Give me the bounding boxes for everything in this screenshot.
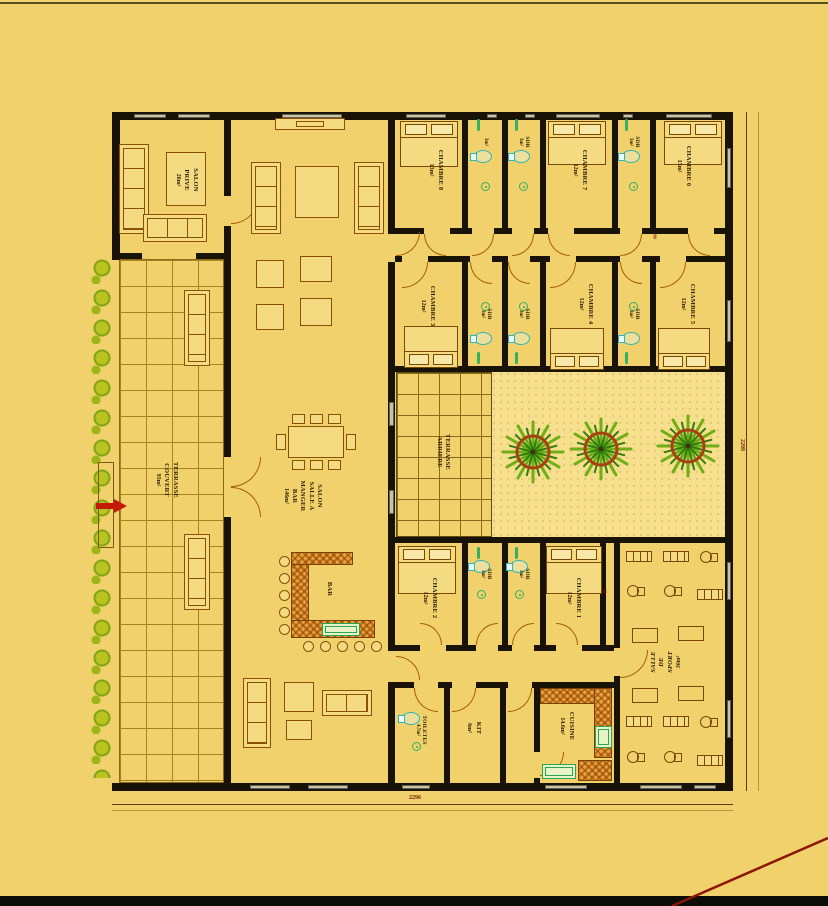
window xyxy=(389,402,394,426)
gym-bike-icon xyxy=(664,749,682,764)
stool-icon xyxy=(279,624,290,635)
wall xyxy=(388,682,395,783)
room-label-toiletes: TOILETES 4.7m² xyxy=(403,698,439,762)
room-label-terrasse-arriere: TERRASSE ARRIERE xyxy=(425,420,461,484)
door-swing-icon xyxy=(470,262,492,284)
window xyxy=(727,300,731,342)
door-swing-icon xyxy=(231,487,261,517)
room-area: 13m² xyxy=(428,164,434,177)
wall xyxy=(612,112,618,234)
room-area: 12m² xyxy=(420,300,426,313)
stool-icon xyxy=(279,590,290,601)
room-area: 3m² xyxy=(484,138,489,146)
wall xyxy=(112,253,142,259)
armchair-icon xyxy=(256,304,284,330)
window xyxy=(525,114,535,118)
room-name: SDB xyxy=(485,308,492,319)
wall xyxy=(502,543,508,651)
room-area: 93m² xyxy=(155,474,161,487)
wall xyxy=(224,517,231,783)
door-swing-icon xyxy=(688,234,710,256)
gym-bike-icon xyxy=(627,749,645,764)
room-name: CHAMBRE 5 xyxy=(687,284,695,325)
room-label-sdb: SDB 3m² xyxy=(516,299,532,329)
gym-bench-icon xyxy=(626,551,652,562)
chair-icon xyxy=(328,414,341,424)
wall xyxy=(388,112,395,234)
room-area: 3m² xyxy=(518,570,523,578)
room-label-sdb: SDB 3m² xyxy=(516,127,532,157)
room-name: CHAMBRE 2 xyxy=(429,578,437,619)
window xyxy=(134,114,166,118)
stool-icon xyxy=(320,641,331,652)
stool-icon xyxy=(279,607,290,618)
room-label-terrasse-couvert: TERRASSE COUVERT 93m² xyxy=(149,448,185,512)
window xyxy=(545,785,587,789)
dimension-line xyxy=(758,112,759,791)
room-name: SDB xyxy=(485,568,492,579)
floor-drain-icon xyxy=(515,590,524,599)
dimension-line xyxy=(112,810,733,811)
floor-drain-icon xyxy=(481,182,490,191)
sofa-icon xyxy=(243,678,271,748)
room-area: 6m² xyxy=(466,723,472,733)
room-label-salon-prive: SALON PRIVE 26m² xyxy=(169,148,205,212)
courtyard-floor xyxy=(492,372,725,537)
room-name: TOILETES xyxy=(420,715,427,744)
wall xyxy=(462,543,468,651)
door-swing-icon xyxy=(396,656,420,680)
wall xyxy=(224,259,231,457)
floor-drain-icon xyxy=(519,182,528,191)
door-swing-icon xyxy=(620,234,642,256)
room-area: 12m² xyxy=(680,298,686,311)
room-area: 14.6m² xyxy=(559,717,565,734)
gym-bike-icon xyxy=(700,549,718,564)
room-area: 13m² xyxy=(676,160,682,173)
floor-plan-canvas: SALON PRIVE 26m² TERRASSE COUVERT 93m² S… xyxy=(0,0,828,906)
window xyxy=(694,785,716,789)
window xyxy=(727,148,731,188)
stool-icon xyxy=(279,556,290,567)
door-opening xyxy=(476,645,498,651)
room-area: 36m² xyxy=(676,656,682,668)
room-name: SALLE DE SPORT xyxy=(650,651,674,673)
window xyxy=(623,114,633,118)
room-area: 12m² xyxy=(572,164,578,177)
gym-bench-icon xyxy=(663,716,689,727)
door-width-label: 90 xyxy=(603,582,608,602)
window xyxy=(308,785,348,789)
kitchen-counter xyxy=(578,760,612,781)
chair-icon xyxy=(346,434,356,450)
room-area: 12m² xyxy=(566,592,572,605)
room-label-sdb: SDB 3m² xyxy=(516,559,532,589)
table-icon xyxy=(300,256,332,282)
wall xyxy=(224,112,231,259)
room-label-chambre-7: CHAMBRE 7 12m² xyxy=(562,138,598,202)
gym-bench-icon xyxy=(697,755,723,766)
table-icon xyxy=(284,682,314,712)
window xyxy=(640,785,682,789)
room-label-chambre-2: CHAMBRE 2 12m² xyxy=(412,566,448,630)
wall xyxy=(395,537,725,543)
toilet-icon xyxy=(474,332,492,345)
window xyxy=(406,114,446,118)
dimension-line xyxy=(112,804,733,805)
stove-icon xyxy=(595,726,612,748)
page-top-rule xyxy=(0,2,828,4)
room-name: TERRASSE COUVERT xyxy=(162,462,178,498)
bench-icon xyxy=(184,534,210,610)
door-swing-icon xyxy=(231,457,261,487)
wall xyxy=(540,112,546,234)
wall xyxy=(388,262,395,651)
room-label-sdb: SDB 3m² xyxy=(478,299,494,329)
room-name: CHAMBRE 1 xyxy=(573,578,581,619)
room-label-salle-sport: SALLE DE SPORT 36m² xyxy=(648,630,684,694)
dimension-line xyxy=(746,112,747,791)
door-opening xyxy=(224,196,231,226)
shower-icon xyxy=(477,352,480,364)
room-label-cuisine: CUISINE 14.6m² xyxy=(549,694,585,758)
room-area: 3m² xyxy=(518,310,523,318)
door-swing-icon xyxy=(508,688,532,712)
room-name: CHAMBRE 8 xyxy=(435,150,443,191)
room-label-sdb: SDB 3m² xyxy=(478,559,494,589)
room-area: 12m² xyxy=(422,592,428,605)
room-name: CHAMBRE 4 xyxy=(585,284,593,325)
window xyxy=(402,785,430,789)
door-swing-icon xyxy=(476,623,498,645)
door-width-label: 90 xyxy=(653,227,658,247)
shower-icon xyxy=(515,352,518,364)
room-name: SALON PRIVE xyxy=(182,168,198,191)
room-name: CHAMBRE 7 xyxy=(579,150,587,191)
wall xyxy=(612,262,618,372)
dimension-total-height: 2298 xyxy=(739,425,745,465)
door-swing-icon xyxy=(396,232,420,256)
door-swing-icon xyxy=(512,623,534,645)
window xyxy=(178,114,210,118)
window xyxy=(727,700,731,738)
floor-drain-icon xyxy=(629,182,638,191)
wall xyxy=(500,688,506,783)
gym-bench-icon xyxy=(697,589,723,600)
room-name: CHAMBRE 3 xyxy=(427,286,435,327)
table-icon xyxy=(286,720,312,740)
window xyxy=(250,785,290,789)
stool-icon xyxy=(337,641,348,652)
sofa-icon xyxy=(251,162,281,234)
room-label-sdb: SDB 3m² xyxy=(626,127,642,157)
gym-bench-icon xyxy=(626,716,652,727)
armchair-icon xyxy=(256,260,284,288)
room-label-chambre-3: CHAMBRE 3 12m² xyxy=(410,274,446,338)
stool-icon xyxy=(354,641,365,652)
room-name: SDB xyxy=(523,568,530,579)
wall xyxy=(502,262,508,372)
room-name: CUISINE xyxy=(566,712,574,741)
door-opening xyxy=(420,645,446,651)
page-bottom-bar xyxy=(0,896,828,906)
room-name: SDB xyxy=(523,308,530,319)
door-swing-icon xyxy=(548,234,570,256)
room-label-chambre-1: CHAMBRE 1 12m² xyxy=(556,566,592,630)
dining-table-icon xyxy=(288,426,344,458)
sofa-icon xyxy=(143,214,207,242)
stool-icon xyxy=(371,641,382,652)
gym-bench-icon xyxy=(663,551,689,562)
room-name: KIT xyxy=(473,722,481,735)
room-area: 3m² xyxy=(628,310,633,318)
room-label-chambre-8: CHAMBRE 8 13m² xyxy=(418,138,454,202)
wall xyxy=(462,262,468,372)
door-swing-icon xyxy=(620,262,642,284)
wall xyxy=(502,112,508,234)
bar-sink-icon xyxy=(322,623,360,636)
window xyxy=(666,114,712,118)
toilet-icon xyxy=(512,332,530,345)
wall xyxy=(462,112,468,234)
sofa-icon xyxy=(354,162,384,234)
room-area: 3m² xyxy=(480,310,485,318)
shower-icon xyxy=(625,352,628,364)
door-swing-icon xyxy=(472,234,494,256)
room-area: 146m² xyxy=(283,488,289,504)
room-label-bar: BAR xyxy=(317,564,341,614)
wall xyxy=(540,262,546,372)
chair-icon xyxy=(292,414,305,424)
room-label-chambre-4: CHAMBRE 4 12m² xyxy=(568,272,604,336)
gym-bike-icon xyxy=(627,583,645,598)
shower-icon xyxy=(477,547,480,559)
room-name: SDB xyxy=(633,308,640,319)
shower-icon xyxy=(515,547,518,559)
room-label-sdb: 3m² xyxy=(478,127,494,157)
room-label-sdb: SDB 3m² xyxy=(626,299,642,329)
tv-unit-icon xyxy=(275,118,345,130)
door-opening xyxy=(556,645,582,651)
chair-icon xyxy=(310,414,323,424)
room-area: 26m² xyxy=(175,174,181,187)
door-opening xyxy=(512,645,534,651)
room-name: SALON SALLE A MANGER BAR xyxy=(290,481,323,512)
room-area: 12m² xyxy=(578,298,584,311)
gym-bike-icon xyxy=(664,583,682,598)
table-icon xyxy=(300,298,332,326)
sofa-icon xyxy=(322,690,372,716)
room-label-kit: KIT 6m² xyxy=(456,696,492,760)
door-swing-icon xyxy=(620,650,648,678)
room-label-chambre-6: CHAMBRE 6 13m² xyxy=(666,134,702,198)
room-area: 3m² xyxy=(518,138,523,146)
wall xyxy=(650,262,656,372)
entrance-walkway xyxy=(98,462,114,548)
chair-icon xyxy=(276,434,286,450)
room-area: 3m² xyxy=(628,138,633,146)
room-name: TERRASSE ARRIERE xyxy=(435,434,451,470)
floor-drain-icon xyxy=(477,590,486,599)
stool-icon xyxy=(279,573,290,584)
bench-icon xyxy=(184,290,210,366)
window xyxy=(487,114,497,118)
wall xyxy=(725,112,733,791)
room-name: SDB xyxy=(523,136,530,147)
room-name: SDB xyxy=(633,136,640,147)
room-area: 3m² xyxy=(480,570,485,578)
room-name: CHAMBRE 6 xyxy=(683,146,691,187)
wall xyxy=(650,112,656,234)
wall xyxy=(444,688,450,783)
window xyxy=(389,490,394,514)
room-area: 4.7m² xyxy=(415,724,420,736)
window xyxy=(727,562,731,600)
door-swing-icon xyxy=(424,234,446,256)
dimension-total-width: 2296 xyxy=(390,795,440,801)
window xyxy=(556,114,600,118)
door-swing-icon xyxy=(508,262,530,284)
stool-icon xyxy=(303,641,314,652)
room-label-salon: SALON SALLE A MANGER BAR 146m² xyxy=(283,464,323,528)
kitchen-sink-icon xyxy=(542,764,576,779)
gym-bike-icon xyxy=(700,714,718,729)
table-icon xyxy=(295,166,339,218)
room-label-chambre-5: CHAMBRE 5 12m² xyxy=(670,272,706,336)
door-swing-icon xyxy=(512,234,534,256)
chair-icon xyxy=(328,460,341,470)
toilet-icon xyxy=(622,332,640,345)
room-name: BAR xyxy=(325,582,333,596)
